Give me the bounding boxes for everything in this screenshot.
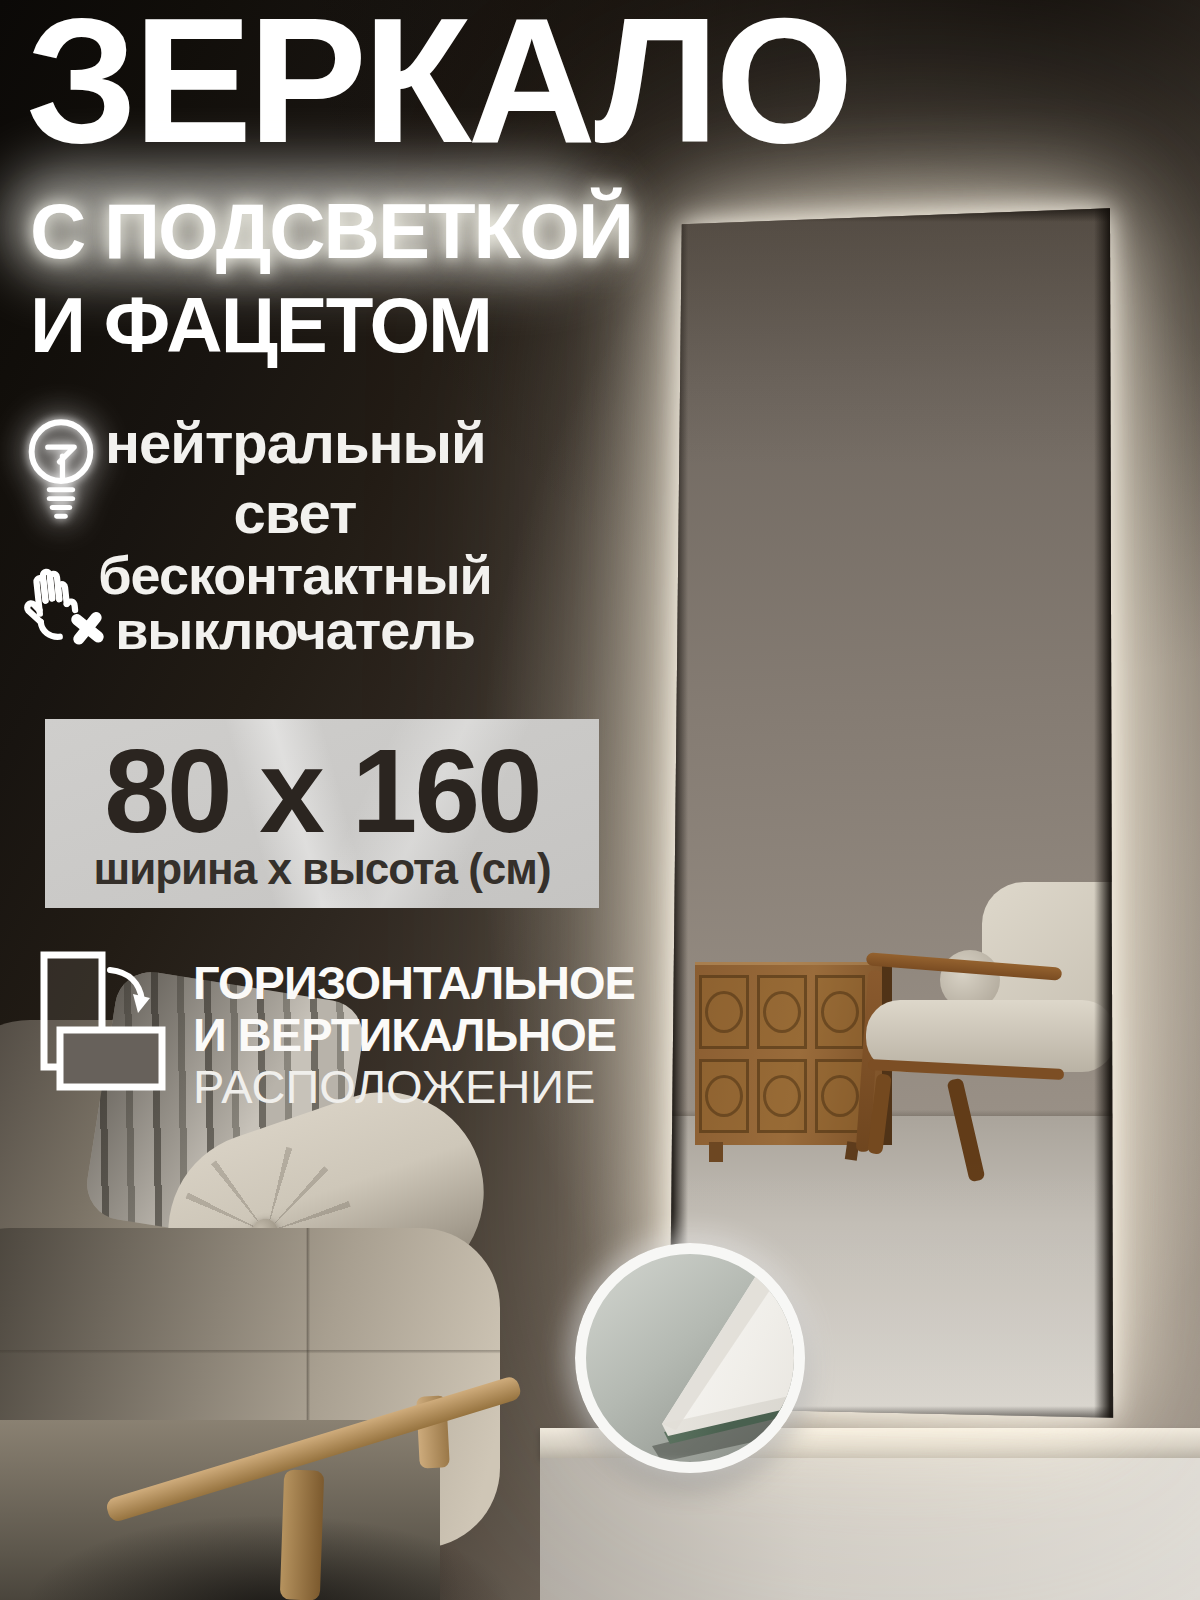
feature-neutral-light: нейтральный свет (105, 408, 485, 548)
feature-contactless-switch: бесконтактный выключатель (95, 548, 495, 658)
orientation-line1: ГОРИЗОНТАЛЬНОЕ (193, 955, 635, 1010)
feature-contactless-switch-line1: бесконтактный (95, 548, 495, 603)
product-title: ЗЕРКАЛО (26, 0, 850, 170)
size-value: 80 х 160 (45, 723, 599, 859)
feature-contactless-switch-line2: выключатель (95, 603, 495, 658)
product-subtitle-backlight: С ПОДСВЕТКОЙ (30, 186, 632, 277)
feature-neutral-light-line2: свет (105, 478, 485, 548)
feature-neutral-light-line1: нейтральный (105, 408, 485, 478)
mirror-glass (664, 196, 1120, 1424)
orientation-line3: РАСПОЛОЖЕНИЕ (193, 1059, 595, 1114)
facet-edge-detail-circle (575, 1243, 805, 1473)
lightbulb-icon (14, 406, 108, 556)
size-caption: ширина х высота (см) (45, 844, 599, 894)
size-badge: 80 х 160 ширина х высота (см) (45, 719, 599, 908)
product-subtitle-facet: И ФАЦЕТОМ (30, 280, 491, 371)
portrait-landscape-rotate-icon (36, 950, 196, 1092)
sofa-front-leg (280, 1469, 325, 1600)
orientation-line2: И ВЕРТИКАЛЬНОЕ (193, 1007, 616, 1062)
mirror-bevel-edges (664, 196, 1120, 1424)
floor (540, 1458, 1200, 1600)
product-card: ЗЕРКАЛО С ПОДСВЕТКОЙ И ФАЦЕТОМ нейтральн… (0, 0, 1200, 1600)
backlit-mirror (664, 196, 1120, 1424)
